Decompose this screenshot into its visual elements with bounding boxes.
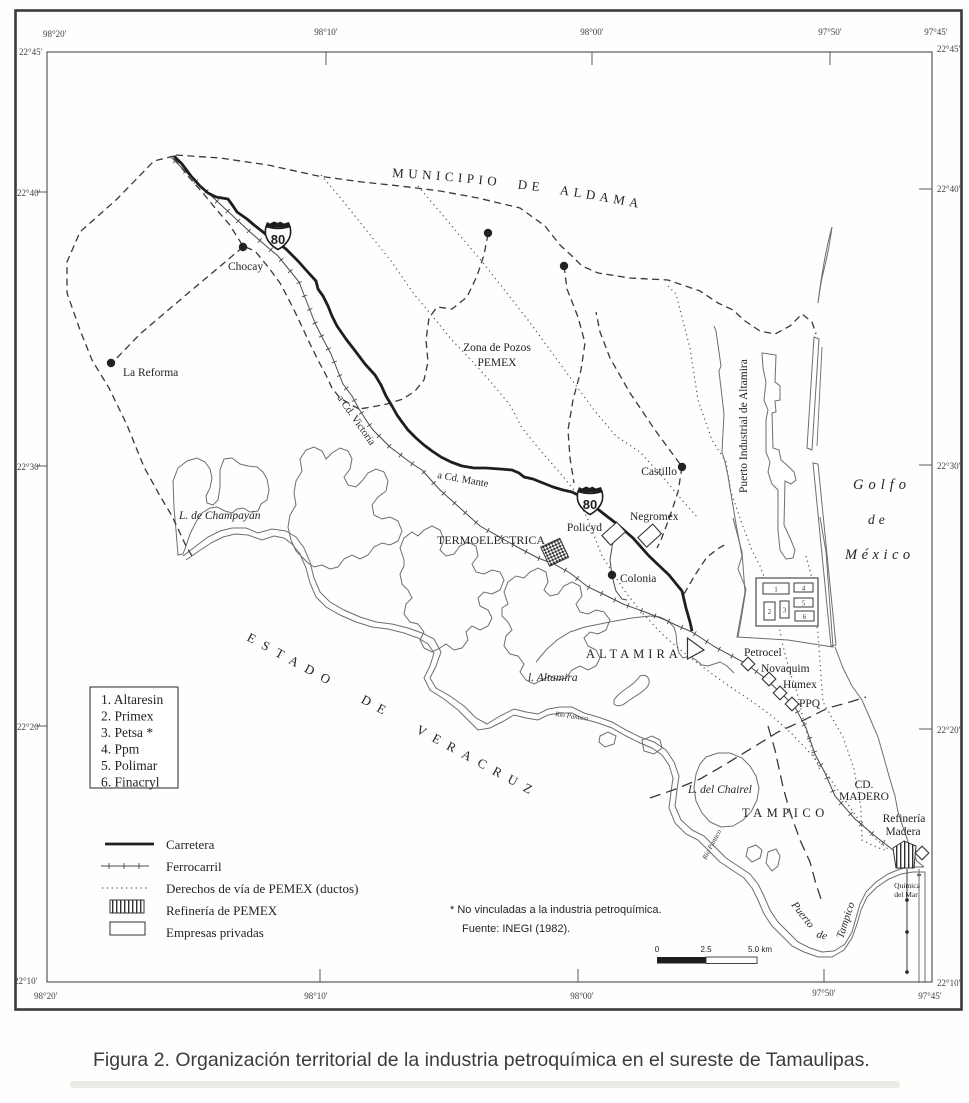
- svg-text:L. de Champayán: L. de Champayán: [178, 510, 261, 522]
- svg-text:3. Petsa *: 3. Petsa *: [101, 725, 153, 740]
- svg-text:Río Panuco: Río Panuco: [700, 828, 723, 862]
- svg-text:98°00′: 98°00′: [580, 27, 604, 37]
- svg-text:98°20′: 98°20′: [43, 29, 67, 39]
- svg-text:Figura 2. Organización territo: Figura 2. Organización territorial de la…: [93, 1049, 870, 1071]
- svg-text:97°50′: 97°50′: [818, 27, 842, 37]
- svg-text:4. Ppm: 4. Ppm: [101, 742, 140, 757]
- svg-text:Humex: Humex: [783, 679, 817, 691]
- svg-text:Chocay: Chocay: [228, 261, 263, 273]
- svg-text:Derechos de vía de PEMEX (duct: Derechos de vía de PEMEX (ductos): [166, 881, 358, 896]
- svg-text:22°20′: 22°20′: [937, 725, 961, 735]
- svg-text:97°45′: 97°45′: [924, 27, 948, 37]
- svg-text:Empresas privadas: Empresas privadas: [166, 925, 264, 940]
- svg-text:del Mar: del Mar: [894, 890, 918, 899]
- svg-text:5.0 km: 5.0 km: [748, 945, 772, 954]
- svg-text:ALTAMIRA: ALTAMIRA: [586, 647, 682, 661]
- svg-text:PEMEX: PEMEX: [478, 357, 518, 369]
- svg-text:*: *: [916, 871, 922, 883]
- svg-text:22°45′: 22°45′: [19, 47, 43, 57]
- svg-text:de: de: [868, 512, 889, 527]
- svg-text:98°20′: 98°20′: [34, 991, 58, 1001]
- svg-text:de: de: [815, 928, 828, 942]
- svg-text:Colonia: Colonia: [620, 573, 656, 585]
- svg-text:1. Altaresin: 1. Altaresin: [101, 692, 163, 707]
- svg-text:6. Finacryl: 6. Finacryl: [101, 775, 160, 790]
- svg-text:98°10′: 98°10′: [314, 27, 338, 37]
- svg-text:3: 3: [783, 607, 787, 615]
- svg-text:Policyd: Policyd: [567, 522, 602, 534]
- svg-text:Puerto: Puerto: [788, 899, 817, 931]
- svg-text:a Cd. Victoria: a Cd. Victoria: [335, 393, 378, 447]
- svg-text:TERMOELECTRICA: TERMOELECTRICA: [437, 533, 545, 547]
- svg-text:22°30′: 22°30′: [17, 462, 41, 472]
- svg-text:Ferrocarril: Ferrocarril: [166, 859, 222, 874]
- svg-text:ESTADO DE VERACRUZ: ESTADO DE VERACRUZ: [245, 629, 543, 800]
- svg-text:22°30′: 22°30′: [937, 461, 961, 471]
- svg-text:Puerto Industrial de Altamira: Puerto Industrial de Altamira: [738, 359, 750, 493]
- svg-text:Madera: Madera: [885, 826, 920, 838]
- svg-text:Fuente: INEGI (1982).: Fuente: INEGI (1982).: [462, 923, 570, 935]
- svg-text:5: 5: [802, 600, 806, 608]
- svg-text:2.5: 2.5: [700, 945, 712, 954]
- svg-text:22°10′: 22°10′: [14, 976, 38, 986]
- svg-text:22°10′: 22°10′: [937, 978, 961, 988]
- svg-text:22°45′: 22°45′: [937, 44, 961, 54]
- svg-text:Negromex: Negromex: [630, 511, 679, 523]
- svg-text:l. Altamira: l. Altamira: [528, 672, 578, 684]
- svg-text:80: 80: [271, 232, 285, 247]
- svg-text:Refinería de PEMEX: Refinería de PEMEX: [166, 903, 278, 918]
- svg-text:L. del Chairel: L. del Chairel: [687, 784, 752, 796]
- svg-text:22°40′: 22°40′: [937, 184, 961, 194]
- svg-text:97°45′: 97°45′: [918, 991, 942, 1001]
- svg-text:Río Panuco: Río Panuco: [554, 710, 589, 723]
- svg-text:Novaquim: Novaquim: [761, 663, 810, 675]
- svg-text:97°50′: 97°50′: [812, 988, 836, 998]
- svg-text:Carretera: Carretera: [166, 837, 215, 852]
- svg-text:Refinería: Refinería: [883, 813, 926, 825]
- svg-text:22°40′: 22°40′: [17, 188, 41, 198]
- svg-text:Golfo: Golfo: [853, 477, 911, 493]
- svg-text:98°00′: 98°00′: [570, 991, 594, 1001]
- svg-text:22°20′: 22°20′: [17, 722, 41, 732]
- svg-text:2: 2: [768, 608, 772, 616]
- svg-text:6: 6: [803, 613, 807, 621]
- svg-text:PPQ: PPQ: [799, 698, 821, 710]
- svg-text:0: 0: [655, 945, 660, 954]
- svg-text:80: 80: [583, 497, 597, 512]
- svg-text:MADERO: MADERO: [839, 791, 889, 803]
- svg-text:4: 4: [802, 585, 806, 593]
- svg-text:MUNICIPIO DE ALDAMA: MUNICIPIO DE ALDAMA: [392, 165, 645, 211]
- svg-text:TAMPICO: TAMPICO: [742, 806, 829, 820]
- svg-text:Petrocel: Petrocel: [744, 647, 782, 659]
- svg-text:La Reforma: La Reforma: [123, 367, 178, 379]
- svg-text:5. Polimar: 5. Polimar: [101, 758, 158, 773]
- svg-text:1: 1: [774, 586, 778, 594]
- svg-text:Tampico: Tampico: [834, 900, 857, 940]
- svg-text:* No vinculadas a la industria: * No vinculadas a la industria petroquím…: [450, 904, 662, 916]
- svg-text:2. Primex: 2. Primex: [101, 709, 154, 724]
- svg-text:a Cd. Mante: a Cd. Mante: [436, 470, 489, 490]
- svg-text:Castillo: Castillo: [641, 466, 677, 478]
- svg-text:98°10′: 98°10′: [304, 991, 328, 1001]
- svg-text:Zona de Pozos: Zona de Pozos: [463, 342, 531, 354]
- svg-text:México: México: [844, 547, 915, 563]
- svg-text:CD.: CD.: [855, 779, 874, 791]
